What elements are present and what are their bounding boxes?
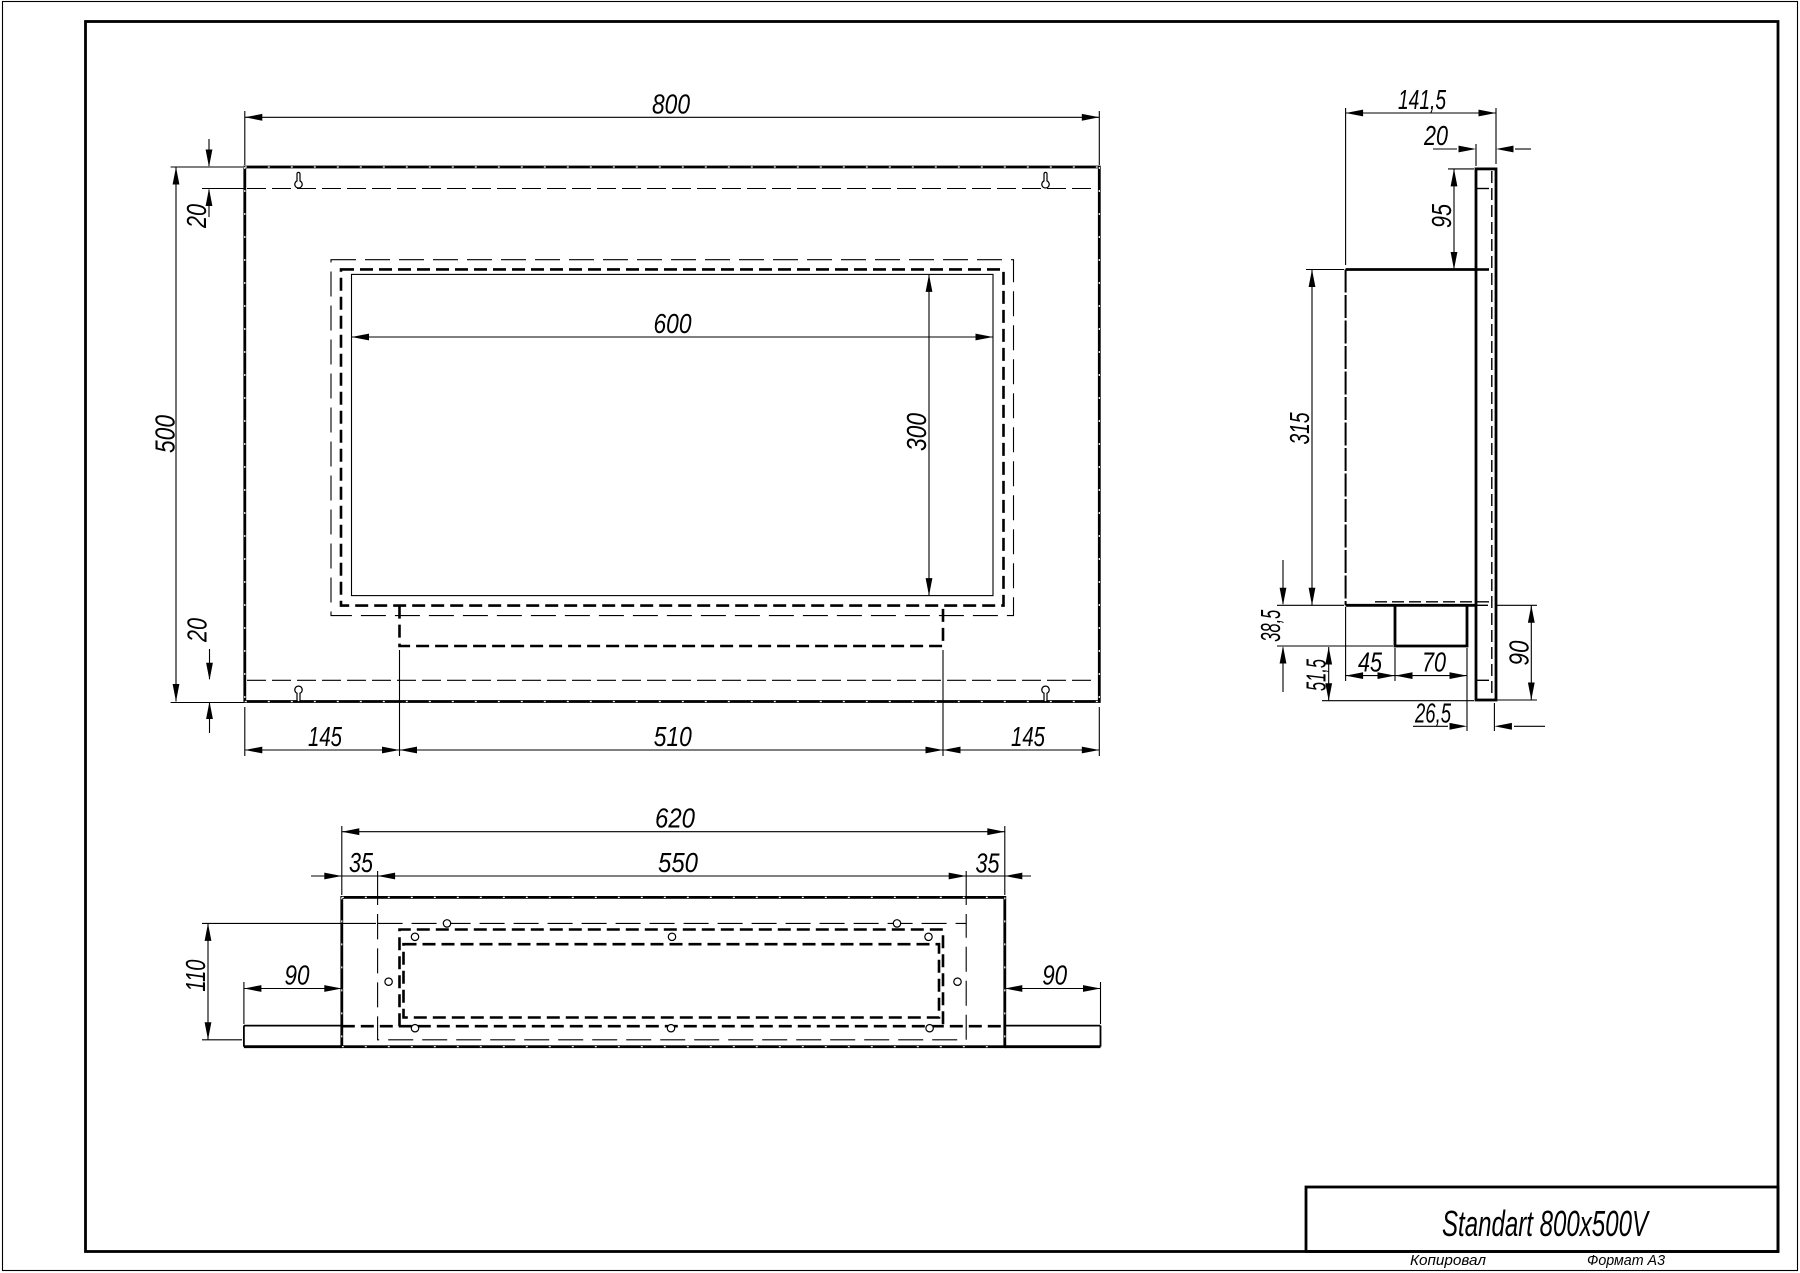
svg-text:35: 35 xyxy=(976,848,1000,879)
svg-text:550: 550 xyxy=(658,847,698,878)
svg-text:95: 95 xyxy=(1426,204,1457,228)
svg-text:90: 90 xyxy=(285,960,310,991)
svg-text:70: 70 xyxy=(1422,647,1446,678)
svg-text:110: 110 xyxy=(180,959,211,991)
svg-text:145: 145 xyxy=(1011,721,1045,752)
svg-text:620: 620 xyxy=(655,803,695,834)
svg-text:51,5: 51,5 xyxy=(1301,659,1332,691)
svg-text:20: 20 xyxy=(1423,120,1448,151)
svg-text:141,5: 141,5 xyxy=(1398,84,1446,115)
svg-text:90: 90 xyxy=(1503,640,1534,665)
svg-text:20: 20 xyxy=(182,618,213,643)
svg-text:Формат А3: Формат А3 xyxy=(1587,1252,1666,1269)
svg-text:Копировал: Копировал xyxy=(1410,1252,1487,1269)
svg-text:45: 45 xyxy=(1358,647,1382,678)
svg-text:20: 20 xyxy=(181,204,212,229)
svg-text:Standart 800x500V: Standart 800x500V xyxy=(1442,1203,1650,1244)
svg-text:38,5: 38,5 xyxy=(1255,609,1286,641)
svg-text:510: 510 xyxy=(654,721,692,752)
svg-text:500: 500 xyxy=(150,415,181,453)
svg-text:145: 145 xyxy=(308,721,342,752)
svg-text:35: 35 xyxy=(349,847,373,878)
svg-text:26,5: 26,5 xyxy=(1414,697,1451,728)
svg-text:300: 300 xyxy=(901,413,932,451)
svg-text:800: 800 xyxy=(652,88,690,119)
svg-text:600: 600 xyxy=(654,308,692,339)
svg-text:90: 90 xyxy=(1042,959,1067,990)
svg-text:315: 315 xyxy=(1284,412,1315,444)
